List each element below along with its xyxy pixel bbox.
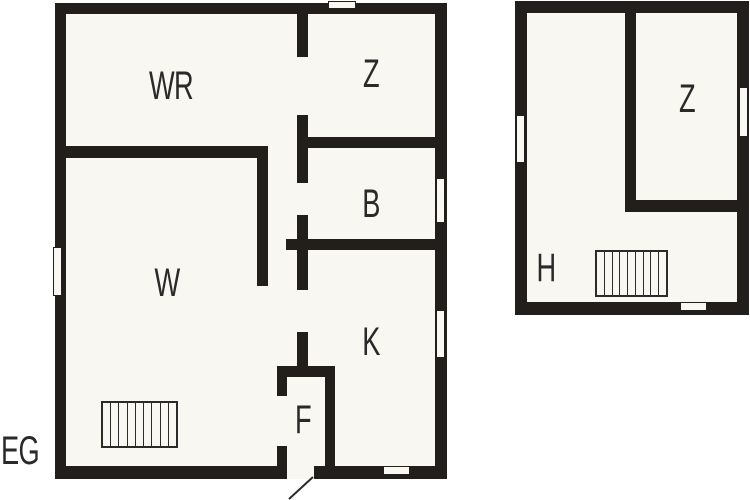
stair-step [152, 403, 160, 446]
room-label-z-eg: Z [363, 54, 379, 94]
room-label-b: B [362, 184, 379, 224]
stair-step [659, 252, 666, 295]
stair-step [119, 403, 127, 446]
og-outer-right [737, 1, 749, 315]
stair-step [111, 403, 119, 446]
room-label-w: W [154, 263, 179, 303]
room-label-wr: WR [149, 66, 193, 106]
stair-step [103, 403, 111, 446]
stair-step [613, 252, 621, 295]
eg-outer-right [435, 3, 447, 479]
stair-step [651, 252, 659, 295]
eg-hall-wall-d [297, 332, 308, 367]
stair-step [161, 403, 169, 446]
room-label-k: K [362, 322, 379, 362]
eg-top-vent [328, 1, 356, 9]
eg-staircase [101, 401, 178, 448]
eg-outer-top [55, 3, 447, 14]
stair-step [605, 252, 613, 295]
og-left-window [516, 115, 525, 163]
eg-f-top-wall [277, 366, 335, 377]
og-z-bottom-wall [625, 200, 737, 212]
room-label-f: F [295, 400, 311, 440]
eg-bottom-window [383, 466, 410, 475]
stair-step [597, 252, 605, 295]
eg-f-left-lower [277, 446, 287, 466]
floor-tag-eg: EG [1, 431, 39, 471]
eg-hall-wall-c [297, 215, 308, 290]
stair-step [136, 403, 144, 446]
eg-left-window [53, 247, 62, 296]
og-staircase [595, 250, 668, 297]
eg-outer-left [55, 3, 66, 479]
room-label-z-og: Z [679, 79, 695, 119]
og-bottom-door [680, 302, 707, 311]
eg-entrance-door [287, 464, 314, 479]
stair-step [169, 403, 176, 446]
eg-hall-wall-a [297, 14, 308, 57]
eg-z-b-divider [297, 137, 436, 148]
eg-right-window-b [436, 178, 445, 223]
stair-step [620, 252, 628, 295]
eg-right-window-k [436, 310, 445, 358]
og-outer-top [515, 1, 749, 13]
room-label-h: H [537, 248, 556, 288]
stair-step [628, 252, 636, 295]
eg-hall-wall-b [297, 115, 308, 183]
og-right-window [739, 87, 748, 137]
stair-step [144, 403, 152, 446]
eg-w-right-wall [257, 146, 268, 286]
og-z-left-wall [625, 13, 636, 212]
eg-b-k-divider [286, 239, 436, 250]
eg-wr-bottom-wall [55, 146, 268, 158]
og-outer-bottom [515, 302, 749, 315]
floor-plan-canvas: WRZBWKFZHEG [0, 0, 750, 500]
eg-f-right-wall [325, 377, 335, 466]
stair-step [644, 252, 652, 295]
stair-step [636, 252, 644, 295]
eg-f-left-upper [277, 377, 287, 396]
stair-step [128, 403, 136, 446]
